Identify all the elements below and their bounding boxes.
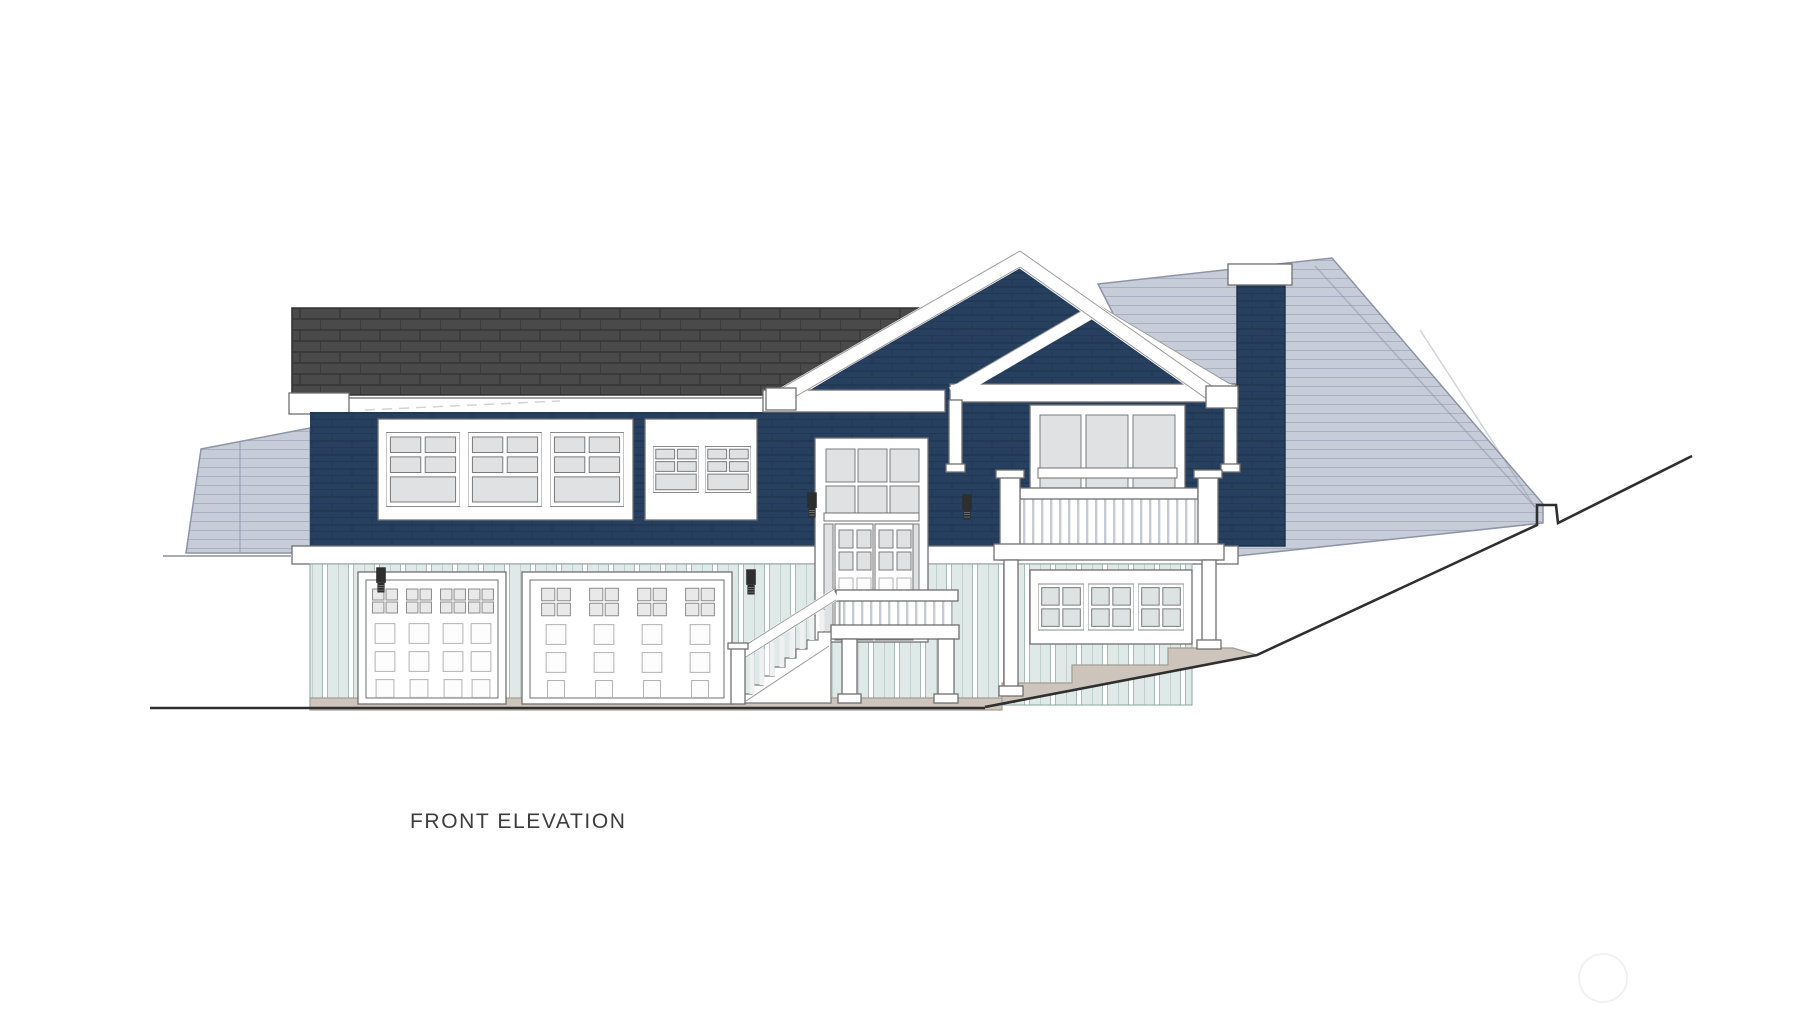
basement-window [1030, 570, 1192, 644]
bargeboard-end-left [766, 388, 796, 410]
porch-deck-band [831, 625, 959, 639]
watermark-circle [1578, 953, 1628, 1003]
entry-sconce-left [807, 492, 817, 517]
rear-roof-left-wing [186, 428, 310, 553]
balcony-post-left [1004, 560, 1018, 690]
porch-post-hanger-left [949, 400, 962, 466]
triple-window [378, 419, 633, 520]
double-window [645, 419, 757, 520]
entry-sconce-right [962, 494, 972, 519]
balcony-post-right [1202, 560, 1216, 644]
chimney-cap [1228, 264, 1292, 285]
bargeboard-end-right [1206, 386, 1238, 408]
garage-door-2 [522, 572, 732, 704]
porch-support-left [842, 639, 857, 697]
house-front-elevation [0, 0, 1800, 1013]
stair-newel [731, 646, 745, 704]
balcony-top-rail [1020, 488, 1198, 499]
balcony-deck-band [994, 544, 1224, 560]
garage-sconce-right [746, 569, 756, 594]
drawing-title: FRONT ELEVATION [410, 810, 627, 834]
elevation-drawing: FRONT ELEVATION [0, 0, 1800, 1013]
garage-sconce-left [376, 567, 386, 592]
eave-return-box [289, 393, 349, 414]
porch-post-hanger-right [1224, 400, 1237, 466]
entry-sidelite-left [824, 524, 833, 636]
porch-top-rail [836, 590, 958, 601]
roof-fascia [289, 393, 778, 414]
porch-support-right [938, 639, 954, 697]
